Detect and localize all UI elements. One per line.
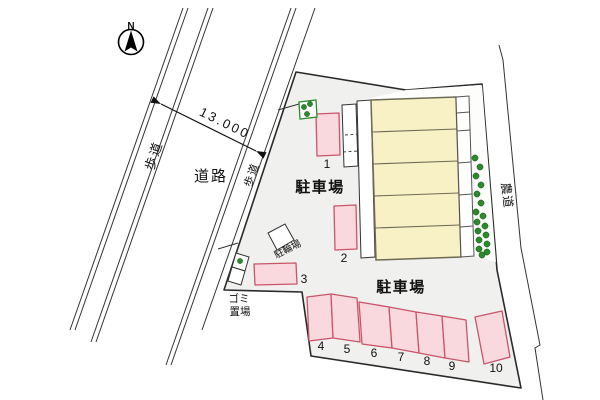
shrub-icon <box>301 104 306 109</box>
space-number-1: 1 <box>324 157 331 171</box>
parking-space-1 <box>316 113 340 156</box>
shrub-icon <box>476 246 482 252</box>
north-label: N <box>127 21 134 32</box>
sidewalk-left-outer-line <box>70 8 183 330</box>
parking-lot-upper-label: 駐車場 <box>295 178 345 196</box>
shrub-icon <box>480 213 486 219</box>
parking-space-4 <box>307 294 333 341</box>
space-number-5: 5 <box>344 342 351 356</box>
apartment-building <box>342 96 474 260</box>
shrub-icon <box>307 101 312 106</box>
garbage-area-label-line2: 置場 <box>230 305 251 318</box>
shrub-icon <box>479 252 485 258</box>
shrub-icon <box>473 173 479 179</box>
building-footprint <box>371 97 461 260</box>
parking-space-5 <box>331 294 360 342</box>
shrub-icon <box>474 219 480 225</box>
shrub-icon <box>474 191 480 197</box>
space-number-10: 10 <box>489 361 503 375</box>
parking-space-9 <box>442 316 469 362</box>
space-number-2: 2 <box>341 251 348 265</box>
parking-space-6 <box>359 302 392 348</box>
space-number-7: 7 <box>398 350 405 364</box>
shrub-icon <box>477 164 483 170</box>
parking-space-2 <box>334 205 357 250</box>
shrub-icon <box>484 241 490 247</box>
north-indicator: N <box>119 21 144 55</box>
parking-space-8 <box>416 312 445 358</box>
stair-block <box>342 104 358 167</box>
shrub-icon <box>483 232 489 238</box>
shrub-icon <box>237 258 242 263</box>
shrub-icon <box>478 200 484 206</box>
sidewalk-left-outer-line2 <box>75 8 188 330</box>
road-width-dimension: 13.000 <box>161 104 256 151</box>
site-plan-canvas: 13.000 N <box>0 0 600 400</box>
parking-space-3 <box>254 263 297 285</box>
shrub-icon <box>476 237 482 243</box>
space-number-8: 8 <box>424 354 431 368</box>
farm-road-label: 農道 <box>498 182 515 210</box>
shrub-icon <box>475 228 481 234</box>
space-number-3: 3 <box>301 272 308 286</box>
sidewalk-left-inner-line <box>91 8 208 342</box>
parking-lot-lower-label: 駐車場 <box>376 278 426 296</box>
shrub-icon <box>482 223 488 229</box>
shrub-icon <box>472 155 478 161</box>
shrub-icon <box>478 182 484 188</box>
parking-space-7 <box>389 307 419 353</box>
shrub-icon <box>304 111 309 116</box>
space-number-6: 6 <box>371 346 378 360</box>
road-label: 道路 <box>194 168 228 185</box>
space-number-9: 9 <box>449 359 456 373</box>
shrub-icon <box>473 209 479 215</box>
garbage-area-label-line1: ゴミ <box>229 292 250 305</box>
site-plan-page: 13.000 N <box>0 0 600 400</box>
driveway-mark-bottom <box>218 243 238 249</box>
sidewalk-left-label: 歩道 <box>142 139 166 172</box>
space-number-4: 4 <box>318 339 325 353</box>
